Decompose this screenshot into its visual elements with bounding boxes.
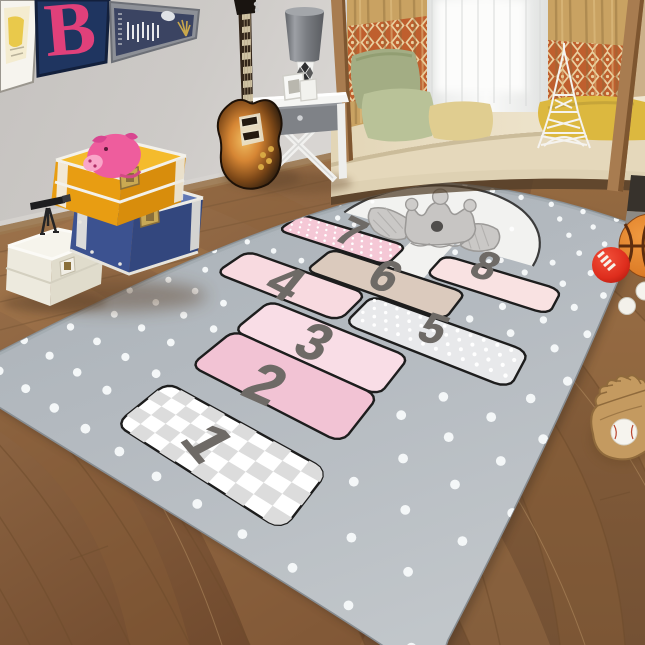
- svg-text:B: B: [41, 0, 99, 73]
